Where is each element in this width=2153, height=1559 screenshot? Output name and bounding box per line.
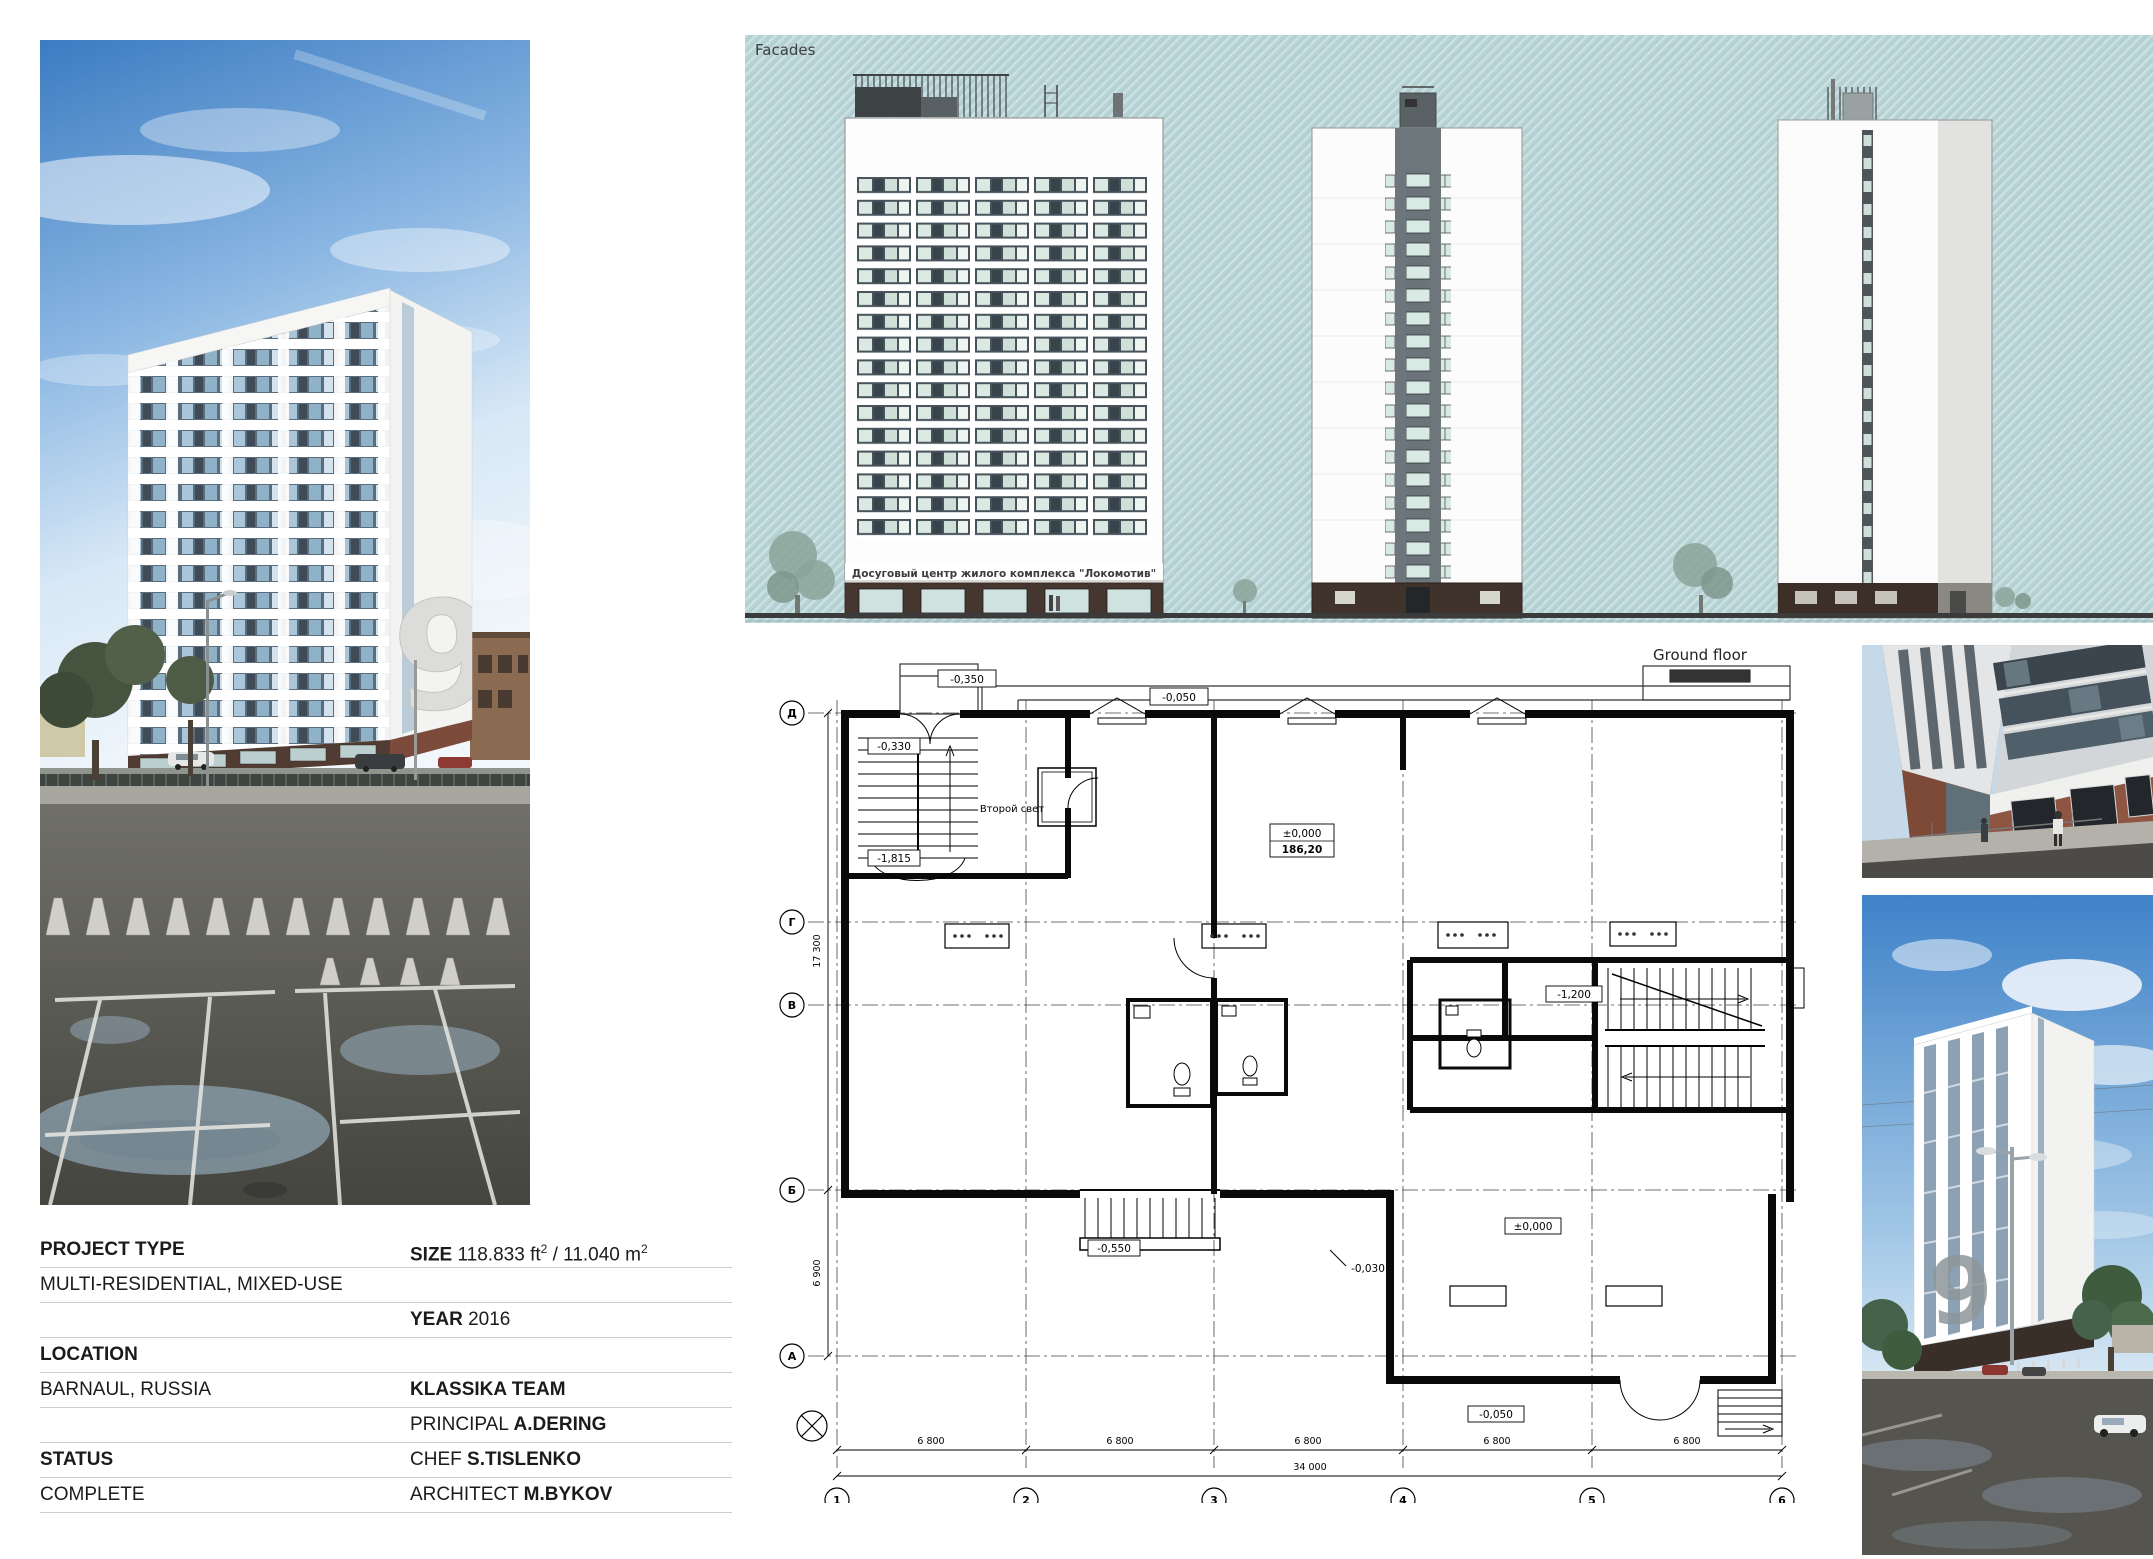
ground-line: [745, 613, 2153, 618]
architect-value: M.BYKOV: [524, 1484, 613, 1505]
spacer: [40, 1408, 410, 1443]
porch-right: [1718, 1390, 1782, 1436]
level-label: ±0,000: [1514, 1221, 1553, 1233]
level-label: -0,050: [1162, 692, 1196, 704]
elevation-end: [1778, 79, 1992, 618]
elevation-side-core: [1312, 87, 1522, 618]
architect-row: ARCHITECT M.BYKOV: [410, 1478, 732, 1513]
grid-row-label: В: [788, 999, 796, 1012]
project-type-label: PROJECT TYPE: [40, 1233, 410, 1268]
fixtures: [1134, 1006, 1481, 1096]
location-value: BARNAUL, RUSSIA: [40, 1373, 410, 1408]
tower: 9: [1914, 1006, 2094, 1377]
level-label: -1,200: [1557, 989, 1591, 1001]
building-caption: Досуговый центр жилого комплекса "Локомо…: [852, 568, 1156, 580]
dim-bay: 6 800: [1106, 1436, 1133, 1447]
architect-label: ARCHITECT: [410, 1484, 518, 1505]
year-label: YEAR: [410, 1309, 463, 1330]
grid-row-label: Д: [787, 707, 797, 720]
photo-entrance: [1862, 645, 2153, 878]
ground-floor-plan: Ground floor Д Г В Б А 1 2 3 4 5 6 6 800…: [750, 638, 1810, 1503]
year-row: YEAR 2016: [410, 1303, 732, 1338]
grid-col-label: 5: [1588, 1494, 1596, 1503]
spacer: [410, 1338, 732, 1373]
dim-v2: 6 900: [812, 1259, 823, 1286]
level-label: -0,050: [1479, 1409, 1513, 1421]
size-label: SIZE: [410, 1244, 452, 1265]
dim-total: 34 000: [1293, 1462, 1326, 1473]
team-name: KLASSIKA TEAM: [410, 1373, 732, 1408]
grid-row-label: Б: [788, 1184, 796, 1197]
elevation-main: Досуговый центр жилого комплекса "Локомо…: [845, 75, 1163, 618]
chef-row: CHEF S.TISLENKO: [410, 1443, 732, 1478]
grid-col-label: 6: [1778, 1494, 1786, 1503]
dim-bay: 6 800: [917, 1436, 944, 1447]
plan-title: Ground floor: [1653, 646, 1748, 664]
level-label: -0,330: [877, 741, 911, 753]
tower-number: 9: [1927, 1237, 1995, 1346]
chef-label: CHEF: [410, 1449, 462, 1470]
level-label: -1,815: [877, 853, 911, 865]
grid-col-label: 3: [1210, 1494, 1218, 1503]
principal-label: PRINCIPAL: [410, 1414, 508, 1435]
grid-row-label: А: [788, 1350, 797, 1363]
room-label: Второй свет: [980, 804, 1044, 815]
level-label: -0,550: [1097, 1243, 1131, 1255]
spacer: [40, 1303, 410, 1338]
grid-bubbles: [780, 701, 1794, 1503]
year-value: 2016: [468, 1309, 510, 1330]
grid-row-label: Г: [788, 916, 795, 929]
chef-value: S.TISLENKO: [467, 1449, 581, 1470]
photo-tower-street: 9: [1862, 895, 2153, 1555]
size-row: SIZE 118.833 ft2 / 11.040 m2: [410, 1233, 732, 1268]
principal-value: A.DERING: [513, 1414, 606, 1435]
status-value: COMPLETE: [40, 1478, 410, 1513]
entrance-building: [1882, 645, 2153, 850]
principal-row: PRINCIPAL A.DERING: [410, 1408, 732, 1443]
level-label: -0,030: [1351, 1263, 1385, 1275]
project-type-value: MULTI-RESIDENTIAL, MIXED-USE: [40, 1268, 410, 1303]
tower: 9: [128, 288, 502, 778]
grid-col-label: 2: [1022, 1494, 1030, 1503]
grid-col-label: 1: [833, 1494, 841, 1503]
level-label: ±0,000: [1283, 828, 1322, 840]
level-label: 186,20: [1282, 844, 1323, 856]
stair-right: [1605, 968, 1765, 1108]
project-info-panel: PROJECT TYPE SIZE 118.833 ft2 / 11.040 m…: [40, 1233, 732, 1513]
north-compass-icon: [797, 1411, 827, 1441]
facades-panel: Facades Досуговый центр жилого комплекса…: [745, 35, 2153, 623]
dim-bay: 6 800: [1673, 1436, 1700, 1447]
status-label: STATUS: [40, 1443, 410, 1478]
dim-bay: 6 800: [1294, 1436, 1321, 1447]
exterior-works: [900, 664, 1790, 714]
main-render-photo: 9: [40, 40, 530, 1205]
level-labels: -0,350 -0,050 -0,330 -1,815 ±0,000 186,2…: [868, 670, 1602, 1422]
level-label: -0,350: [950, 674, 984, 686]
counter-dots: [953, 932, 1668, 938]
facades-title: Facades: [755, 41, 816, 59]
size-value: 118.833 ft: [458, 1244, 541, 1265]
spacer: [410, 1268, 732, 1303]
counters: [945, 922, 1676, 1306]
grid-col-label: 4: [1399, 1494, 1407, 1503]
grid: [808, 700, 1798, 1468]
dim-v1: 17 300: [812, 934, 823, 967]
dim-bay: 6 800: [1483, 1436, 1510, 1447]
location-label: LOCATION: [40, 1338, 410, 1373]
size-value-metric: 11.040 m: [563, 1244, 641, 1265]
